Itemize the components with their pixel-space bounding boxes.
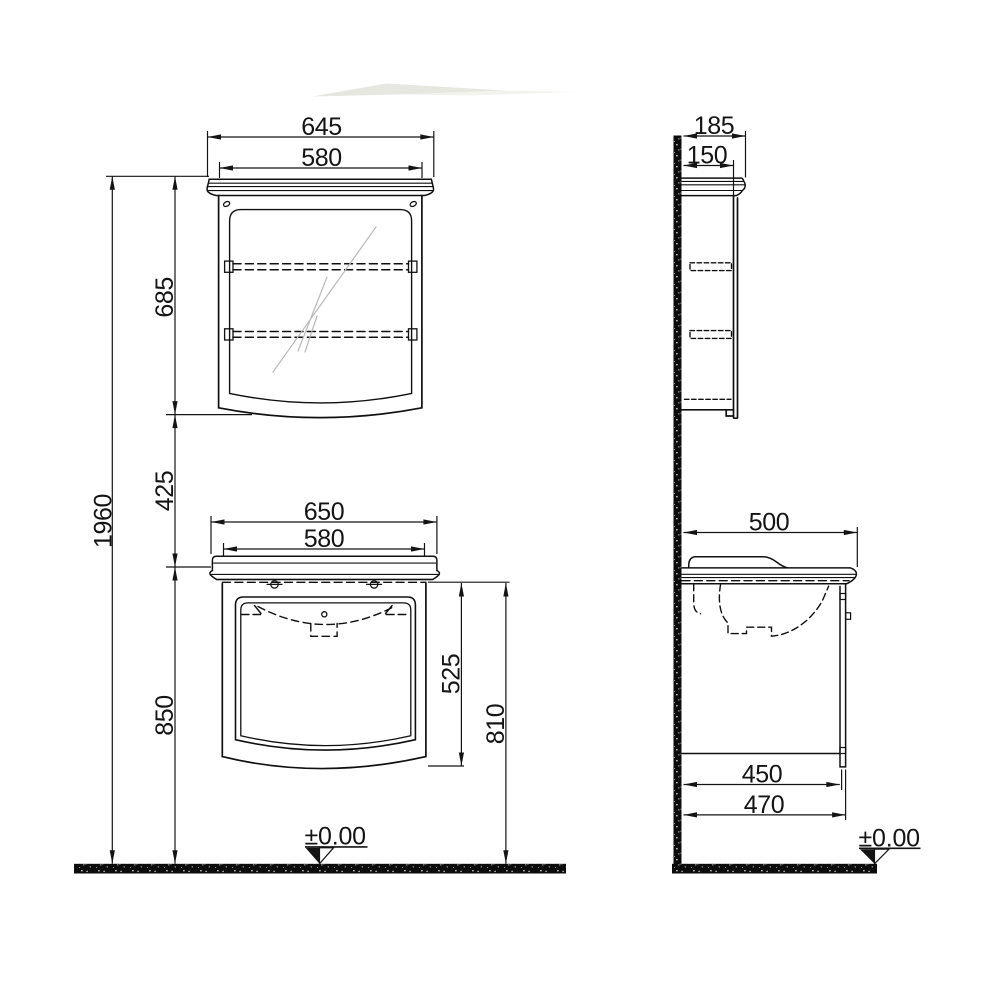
svg-text:425: 425 (151, 471, 179, 512)
svg-text:685: 685 (151, 277, 179, 318)
svg-text:645: 645 (301, 113, 342, 141)
svg-text:850: 850 (151, 695, 179, 736)
svg-text:525: 525 (437, 654, 465, 695)
svg-text:150: 150 (687, 142, 728, 170)
svg-text:450: 450 (742, 761, 783, 789)
svg-text:580: 580 (301, 144, 342, 172)
svg-text:580: 580 (304, 525, 345, 553)
svg-text:810: 810 (482, 704, 510, 745)
svg-text:470: 470 (744, 791, 785, 819)
svg-text:185: 185 (694, 112, 735, 140)
svg-text:500: 500 (749, 509, 790, 537)
svg-text:1960: 1960 (90, 494, 118, 548)
svg-text:650: 650 (304, 498, 345, 526)
